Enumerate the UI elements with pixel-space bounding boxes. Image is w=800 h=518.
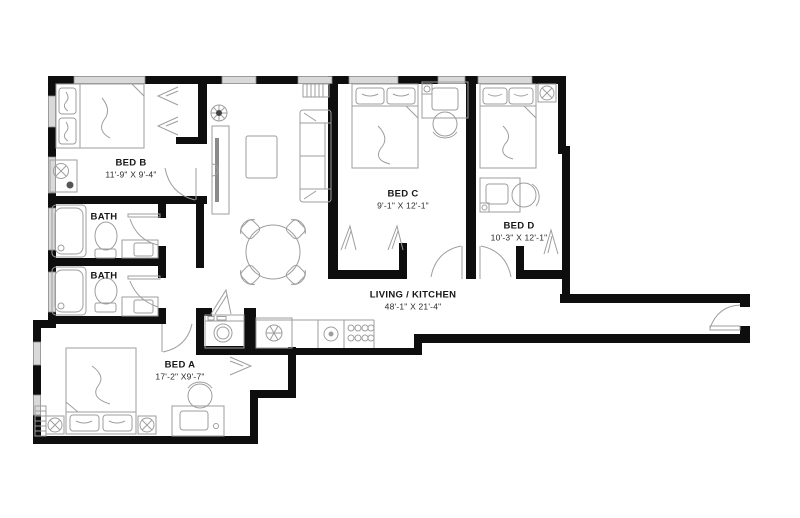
stove — [348, 325, 374, 341]
bed-b-name: BED B — [105, 158, 156, 169]
laundry-bifold-icon — [211, 290, 231, 314]
floor-plan-page: BED B 11'-9" X 9'-4" BATH BATH BED A 17'… — [0, 0, 800, 518]
bed-d-ceiling-fan — [538, 84, 556, 102]
bed-d-dims: 10'-3" X 12'-1" — [491, 233, 548, 244]
bed-d-bed — [480, 84, 536, 168]
bed-a-door — [162, 324, 192, 352]
bed-c-door — [431, 246, 462, 279]
dining-table — [246, 225, 300, 279]
bed-b-bed — [56, 84, 144, 148]
bed-d-door — [480, 246, 511, 279]
bed-c-closet-hangers-icon — [341, 226, 403, 250]
living-kitchen-label: LIVING / KITCHEN 48'-1" X 21'-4" — [370, 290, 457, 313]
bath-1-name: BATH — [91, 212, 118, 223]
sofa — [300, 110, 331, 202]
bed-b-door — [165, 168, 196, 200]
bed-a-radiator — [35, 406, 46, 436]
bath-1-sink-vanity — [122, 240, 158, 258]
living-kitchen-name: LIVING / KITCHEN — [370, 290, 457, 301]
kitchen-sink — [324, 327, 338, 341]
bed-a-ceiling-fan-right — [138, 416, 156, 434]
bath-2-toilet — [95, 278, 117, 312]
bed-b-label: BED B 11'-9" X 9'-4" — [105, 158, 156, 181]
bath-2-door — [128, 276, 160, 307]
living-kitchen-dims: 48'-1" X 21'-4" — [370, 302, 457, 313]
bed-a-bed — [66, 348, 136, 434]
windows — [34, 77, 533, 416]
bed-c-desk — [422, 82, 468, 138]
bath-2-sink-vanity — [122, 297, 158, 316]
bed-b-dims: 11'-9" X 9'-4" — [105, 170, 156, 181]
bed-a-ceiling-fan-left — [46, 416, 64, 434]
bath-2-name: BATH — [91, 271, 118, 282]
bed-d-label: BED D 10'-3" X 12'-1" — [491, 221, 548, 244]
bed-c-name: BED C — [377, 189, 429, 200]
bed-c-label: BED C 9'-1" X 12'-1" — [377, 189, 429, 212]
bed-d-name: BED D — [491, 221, 548, 232]
bed-a-label: BED A 17'-2" X9'-7" — [155, 360, 204, 383]
tv-console — [212, 126, 229, 214]
washer — [205, 315, 244, 348]
coffee-table — [246, 136, 277, 178]
bed-d-desk — [480, 178, 539, 212]
bath-2-label: BATH — [91, 271, 118, 282]
living-radiator — [303, 84, 329, 97]
plant-icon — [211, 105, 227, 121]
walls — [33, 76, 750, 444]
bath-2-shower — [52, 267, 86, 315]
bed-b-closet-hangers-icon — [158, 87, 178, 135]
bath-1-toilet — [95, 222, 117, 258]
bed-a-name: BED A — [155, 360, 204, 371]
entry-door — [710, 305, 740, 330]
bed-a-desk — [172, 382, 224, 436]
refrigerator — [256, 318, 292, 348]
bed-a-dims: 17'-2" X9'-7" — [155, 372, 204, 383]
bath-1-shower — [52, 205, 86, 257]
bed-c-bed — [352, 84, 418, 168]
dining-chairs — [237, 216, 309, 288]
bed-a-closet-bifold-icon — [230, 357, 251, 375]
bath-1-label: BATH — [91, 212, 118, 223]
floor-plan-drawing — [0, 0, 800, 518]
bed-c-dims: 9'-1" X 12'-1" — [377, 201, 429, 212]
